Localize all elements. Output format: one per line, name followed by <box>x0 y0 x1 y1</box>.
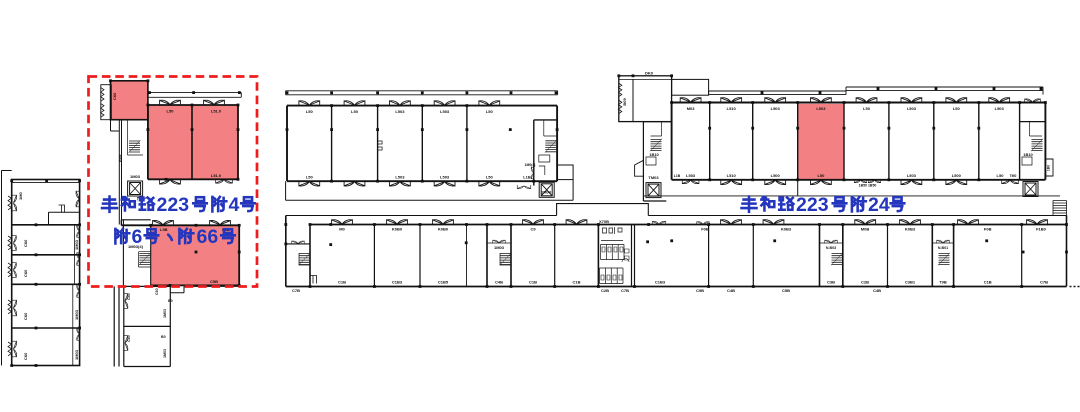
svg-text:L50: L50 <box>997 173 1005 178</box>
svg-text:B0: B0 <box>168 299 173 303</box>
svg-text:N.B01: N.B01 <box>938 246 948 250</box>
svg-text:C1B: C1B <box>529 280 537 285</box>
svg-text:C4B: C4B <box>495 280 503 285</box>
svg-text:C1B3: C1B3 <box>392 280 403 285</box>
svg-text:K0B3: K0B3 <box>905 227 916 232</box>
svg-text:1M03: 1M03 <box>130 174 141 179</box>
svg-text:C60: C60 <box>127 293 131 300</box>
svg-text:K0B0: K0B0 <box>438 227 449 232</box>
svg-text:66: 66 <box>197 226 219 248</box>
svg-text:L50: L50 <box>486 175 494 180</box>
svg-text:L50: L50 <box>167 109 175 114</box>
svg-text:C7B: C7B <box>292 288 300 293</box>
svg-text:TM0: TM0 <box>1010 174 1017 178</box>
svg-text:L503: L503 <box>995 106 1005 111</box>
svg-text:C60: C60 <box>23 312 28 320</box>
svg-text:L50: L50 <box>306 175 314 180</box>
svg-text:L503: L503 <box>907 173 917 178</box>
svg-text:C60: C60 <box>112 92 117 100</box>
svg-text:C4B: C4B <box>727 288 735 293</box>
svg-text:N.B03: N.B03 <box>826 246 836 250</box>
svg-text:C7B: C7B <box>621 288 629 293</box>
svg-text:C1B: C1B <box>572 280 580 285</box>
svg-text:L503: L503 <box>395 109 405 114</box>
svg-text:L503: L503 <box>907 106 917 111</box>
svg-text:4: 4 <box>229 194 240 216</box>
svg-text:6: 6 <box>132 226 143 248</box>
svg-text:1M03: 1M03 <box>74 309 79 320</box>
svg-text:X70B: X70B <box>599 219 609 224</box>
svg-text:1M03: 1M03 <box>74 239 79 250</box>
svg-text:1M03: 1M03 <box>163 349 167 358</box>
svg-text:L1B: L1B <box>523 175 531 180</box>
svg-text:L503: L503 <box>686 173 696 178</box>
svg-text:TM03: TM03 <box>648 175 659 180</box>
svg-text:B09: B09 <box>622 98 627 106</box>
svg-text:L5B: L5B <box>160 227 168 232</box>
svg-text:C60: C60 <box>23 269 28 277</box>
svg-text:C4B: C4B <box>873 288 881 293</box>
svg-text:C9: C9 <box>530 227 536 232</box>
svg-text:L503: L503 <box>816 106 826 111</box>
svg-text:24: 24 <box>868 194 890 216</box>
svg-text:C5B: C5B <box>782 288 790 293</box>
svg-text:C1B: C1B <box>338 280 346 285</box>
svg-text:L500: L500 <box>952 173 962 178</box>
svg-text:M0: M0 <box>339 227 345 232</box>
svg-text:1M03: 1M03 <box>163 309 167 318</box>
svg-text:B09: B09 <box>118 154 123 162</box>
svg-text:C1B: C1B <box>984 280 992 285</box>
svg-text:1M0(4): 1M0(4) <box>525 163 536 167</box>
svg-text:C2B: C2B <box>861 280 869 285</box>
svg-text:1B50 1B50: 1B50 1B50 <box>859 184 877 188</box>
svg-text:1B10: 1B10 <box>649 152 659 157</box>
svg-text:L503: L503 <box>440 175 450 180</box>
svg-text:223: 223 <box>157 194 190 216</box>
svg-text:M03: M03 <box>687 106 696 111</box>
svg-text:C60: C60 <box>155 288 159 295</box>
svg-text:K0B0: K0B0 <box>392 227 403 232</box>
svg-text:C60: C60 <box>23 352 28 360</box>
svg-text:223: 223 <box>796 194 829 216</box>
svg-text:C7B: C7B <box>1040 280 1048 285</box>
svg-text:1B10: 1B10 <box>1023 152 1033 157</box>
svg-text:L50: L50 <box>817 173 825 178</box>
svg-text:F0B: F0B <box>984 227 992 232</box>
svg-text:L503: L503 <box>771 106 781 111</box>
svg-text:C1B3: C1B3 <box>655 280 666 285</box>
svg-text:L503: L503 <box>440 109 450 114</box>
svg-text:L50: L50 <box>863 106 871 111</box>
svg-text:1M03: 1M03 <box>74 349 79 360</box>
svg-text:DK0: DK0 <box>645 71 654 76</box>
svg-text:T9B: T9B <box>939 280 947 285</box>
svg-text:L500: L500 <box>771 173 781 178</box>
svg-text:C9B: C9B <box>696 288 704 293</box>
svg-text:1M0: 1M0 <box>18 191 23 200</box>
svg-text:1B0: 1B0 <box>1047 165 1051 171</box>
svg-text:L1B: L1B <box>674 174 681 178</box>
svg-text:L51.0: L51.0 <box>211 173 222 178</box>
svg-text:K0B3: K0B3 <box>781 227 792 232</box>
svg-text:L50: L50 <box>351 109 359 114</box>
svg-text:C60: C60 <box>127 335 131 342</box>
svg-text:B0: B0 <box>161 335 166 339</box>
svg-text:L50: L50 <box>953 106 961 111</box>
svg-text:L503: L503 <box>395 175 405 180</box>
svg-text:L510: L510 <box>727 106 737 111</box>
svg-text:M0B: M0B <box>861 227 870 232</box>
svg-text:L50: L50 <box>486 109 494 114</box>
svg-text:C3B1: C3B1 <box>905 280 916 285</box>
svg-text:F1B0: F1B0 <box>1036 227 1047 232</box>
svg-text:C1B5: C1B5 <box>438 280 449 285</box>
svg-text:C2B: C2B <box>601 288 609 293</box>
svg-text:L510: L510 <box>727 173 737 178</box>
svg-text:L51.0: L51.0 <box>211 109 222 114</box>
svg-text:1M03: 1M03 <box>494 245 505 250</box>
svg-text:L50: L50 <box>306 109 314 114</box>
svg-text:F0B: F0B <box>701 227 709 232</box>
svg-text:1M03: 1M03 <box>541 190 552 195</box>
svg-text:C5B: C5B <box>210 279 218 284</box>
svg-text:C60: C60 <box>23 239 28 247</box>
svg-text:C3B: C3B <box>827 280 835 285</box>
